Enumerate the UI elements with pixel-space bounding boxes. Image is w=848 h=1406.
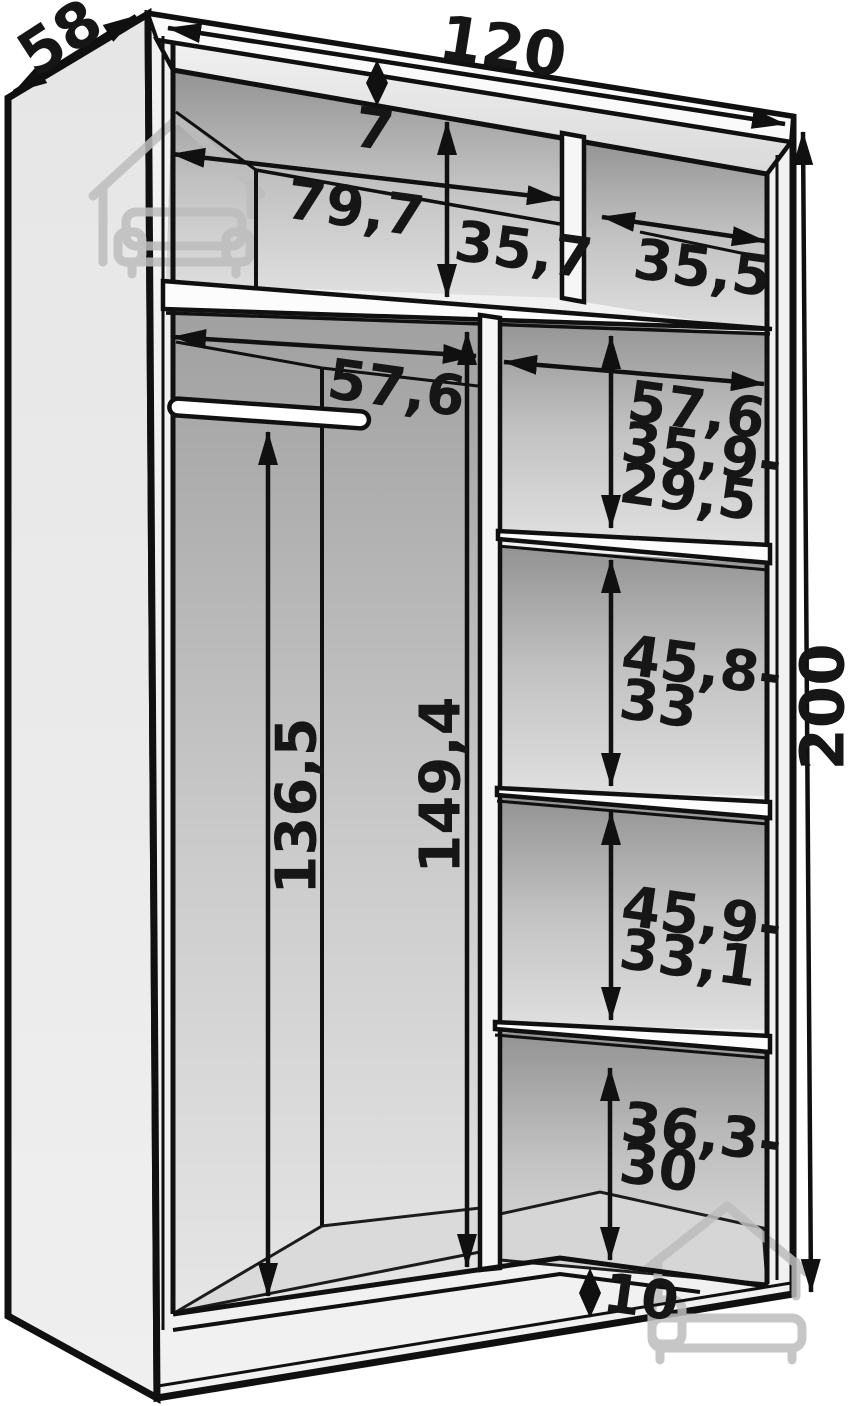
wardrobe-dimension-diagram: 58 120 200 7 79,7 35,7 35,5 57,6 57,6 35…: [0, 0, 848, 1406]
gap4-label-line2: 30: [615, 1131, 701, 1206]
gap2-label-line2: 33: [615, 667, 701, 742]
height-label: 200: [788, 643, 848, 770]
side-panel: [8, 14, 157, 1398]
plinth-height-label: 10: [600, 1261, 683, 1334]
hanging-height-label: 136,5: [265, 717, 330, 894]
divider-height-label: 149,4: [409, 696, 474, 873]
